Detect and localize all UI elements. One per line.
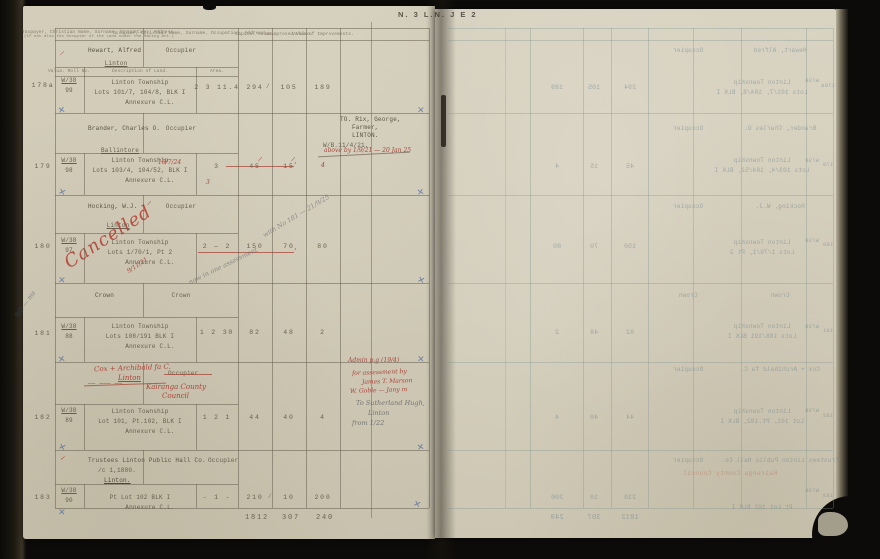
- bleed-through-text: 4: [555, 414, 559, 421]
- table-line: [55, 153, 238, 154]
- table-line: [143, 283, 144, 317]
- area-value: 3: [214, 163, 220, 170]
- bleed-through-text: Hewart, Alfred: [753, 47, 806, 54]
- bleed-through-text: Lots 108/191 BLK I: [728, 333, 796, 340]
- improvements-value: 4: [320, 414, 326, 421]
- capital-value: 44: [249, 414, 260, 421]
- red-margin-line: [371, 22, 372, 518]
- bleed-through-text: 1812: [621, 514, 639, 522]
- blue-ink-check: ✕: [57, 105, 66, 116]
- entry-number: 180: [34, 243, 51, 250]
- capital-value: 210: [246, 494, 263, 501]
- red-annotation: above by 1/9/21 — 20 Jan 25: [324, 147, 411, 154]
- bleed-through-text: Lot 101, Pt.102, BLK I: [720, 418, 804, 425]
- red-tick-mark: ✓: [60, 455, 65, 462]
- blue-ink-check: ✕: [57, 354, 66, 365]
- bleed-through-text: W/38: [805, 407, 819, 414]
- corner-flap: [818, 512, 848, 536]
- capital-value: 294: [246, 84, 263, 91]
- entry-number: 181: [34, 330, 51, 337]
- bleed-through-text: 70: [590, 243, 598, 250]
- bleed-through-text: Occupier: [673, 203, 703, 210]
- bleed-through-text: Lots 1/70/1, Pt 2: [730, 249, 795, 256]
- bleed-through-text: Pt Lot 102 BLK I: [732, 504, 793, 511]
- capital-value: 45: [249, 163, 260, 170]
- table-line: [143, 28, 144, 67]
- bleed-through-text: 179: [823, 161, 834, 168]
- bleed-through-text: Crown: [770, 292, 789, 299]
- binding-stitch-mark: [441, 95, 446, 147]
- bleed-through-text: Linton Township: [733, 79, 790, 86]
- table-line: [196, 317, 197, 362]
- bleed-through-text: 150: [624, 243, 636, 250]
- bleed-through-text: 40: [590, 414, 598, 421]
- bleed-through-text: 2: [555, 329, 559, 336]
- table-line-right: [693, 28, 694, 508]
- improvements-value-red: 4: [321, 161, 325, 169]
- bleed-through-text: 182: [823, 412, 834, 419]
- bleed-through-text: Linton Township: [733, 408, 790, 415]
- bleed-through-text: Lots 103/4, 104/52, BLK I: [714, 167, 809, 174]
- total-improvements: 240: [316, 514, 334, 522]
- description-line: Linton Township: [111, 323, 168, 330]
- improvements-value: 200: [314, 494, 331, 501]
- bleed-through-text: 200: [551, 494, 563, 501]
- bleed-through-text: 210: [624, 494, 636, 501]
- bleed-through-text: Hocking, W.J.: [755, 203, 804, 210]
- pencil-note: from 1/22: [352, 419, 384, 427]
- roll-ref-bottom: 90: [65, 497, 73, 504]
- bleed-through-text: W/38: [805, 77, 819, 84]
- roll-ref-bottom: 98: [65, 167, 73, 174]
- table-line: [55, 283, 429, 284]
- table-line: [55, 317, 238, 318]
- description-line: Lots 1/70/1, Pt 2: [108, 249, 173, 256]
- bleed-through-text: W/38: [805, 323, 819, 330]
- taxpayer-name: Trustees Linton Public Hall Co.: [88, 457, 206, 464]
- area-value: 1 2 30: [200, 329, 234, 336]
- bleed-through-text: 105: [588, 84, 600, 91]
- bleed-through-text: 181: [823, 327, 834, 334]
- table-line: [55, 67, 238, 68]
- description-line: Lots 101/7, 104/8, BLK I: [94, 89, 185, 96]
- bleed-through-text: 15: [590, 163, 598, 170]
- occupier-value: Occupier: [208, 457, 238, 464]
- bleed-through-text: Linton Township: [733, 323, 790, 330]
- blue-ink-check: ✕: [416, 442, 425, 453]
- description-line: Annexure C.L.: [125, 259, 174, 266]
- table-line-right: [648, 28, 649, 508]
- unimproved-value: 15: [283, 163, 294, 170]
- table-line: [143, 195, 144, 233]
- unimproved-value: 10: [283, 494, 294, 501]
- bleed-through-text: Occupier: [673, 125, 703, 132]
- description-line: Lots 103/4, 104/52, BLK I: [92, 167, 187, 174]
- value-slash: /: [266, 83, 270, 90]
- table-line: [272, 28, 273, 508]
- binding-gutter: [426, 0, 456, 559]
- table-line: [55, 484, 238, 485]
- unimproved-value: 40: [283, 414, 294, 421]
- occupier-value: Occupier: [166, 125, 196, 132]
- transfer-note-line: LINTON.: [352, 132, 379, 139]
- taxpayer-name: Brander, Charles O.: [88, 125, 160, 132]
- area-value: 1 2 1: [203, 414, 232, 421]
- area-value: 2 3 11.4: [194, 84, 240, 91]
- bleed-through-text: 82: [626, 329, 634, 336]
- top-edge-nub: [203, 3, 216, 10]
- occupier-value: Crown: [171, 292, 190, 299]
- entry-number: 183: [34, 494, 51, 501]
- table-line: [84, 233, 85, 283]
- table-line-right: [611, 28, 612, 508]
- description-line: Linton Township: [111, 239, 168, 246]
- bleed-through-text: Linton Township: [733, 157, 790, 164]
- blue-ink-check: ✕: [417, 106, 425, 117]
- table-line: [84, 153, 85, 195]
- table-line: [306, 28, 307, 508]
- area-value: - 1 -: [203, 494, 232, 501]
- bleed-through-text: Trustees Linton Public Hall Co.: [721, 457, 839, 464]
- improvements-value: 80: [317, 243, 328, 250]
- red-strike-line: [164, 374, 212, 375]
- table-line-right: [806, 28, 807, 508]
- taxpayer-name: Hewart, Alfred: [88, 47, 141, 54]
- table-line: [55, 195, 429, 196]
- table-line: [55, 28, 429, 29]
- blue-ink-check: ✕: [417, 355, 425, 366]
- occupier-value: Occupier: [166, 203, 196, 210]
- bleed-through-text: 240: [550, 514, 563, 522]
- total-unimproved: 307: [282, 514, 300, 522]
- page-mark-stamp: N. 3 L.N. J E 2: [398, 10, 478, 19]
- red-figure: 3: [206, 179, 210, 186]
- red-occupier-line: Kairanga County: [146, 383, 206, 391]
- description-line: Linton Township: [111, 79, 168, 86]
- table-line: [84, 67, 85, 113]
- bleed-through-text: W/38: [805, 237, 819, 244]
- bleed-through-text: W/38: [805, 487, 819, 494]
- entry-number: 182: [34, 414, 51, 421]
- taxpayer-address: Linton: [105, 60, 128, 67]
- bleed-through-text: Kairanga County Council: [683, 470, 777, 477]
- blue-ink-check: ✕: [58, 276, 66, 287]
- unimproved-value: 105: [280, 84, 297, 91]
- table-line: [196, 233, 197, 283]
- area-value: 2 — 2: [203, 243, 232, 250]
- red-margin-line-right: [505, 28, 506, 508]
- table-line: [55, 28, 56, 508]
- table-line: [143, 362, 144, 404]
- table-line: [55, 40, 429, 41]
- bleed-through-text: 10: [590, 494, 598, 501]
- bleed-through-text: Linton Township: [733, 239, 790, 246]
- table-line: [55, 233, 238, 234]
- bleed-through-text: 189: [551, 84, 563, 91]
- description-line: Annexure C.L.: [125, 428, 174, 435]
- table-line: [429, 28, 430, 508]
- roll-ref-top: W/38: [61, 77, 76, 84]
- roll-ref-bottom: 99: [65, 87, 73, 94]
- pencil-note: To Sutherland Hugh,: [356, 399, 425, 407]
- taxpayer-address: Linton.: [104, 477, 131, 484]
- roll-ref-top: W/38: [61, 487, 76, 494]
- table-line: [55, 450, 429, 451]
- table-line: [84, 404, 85, 450]
- table-line-right: [833, 28, 834, 508]
- bleed-through-text: Brander, Charles O.: [744, 125, 816, 132]
- table-line-right: [530, 28, 531, 508]
- bleed-through-text: 45: [626, 163, 634, 170]
- bleed-through-text: 294: [624, 84, 636, 91]
- bleed-through-text: Lots 101/7, 104/8, BLK I: [716, 89, 807, 96]
- total-capital: 1812: [245, 514, 269, 522]
- bleed-through-text: 48: [590, 329, 598, 336]
- table-line: [55, 113, 429, 114]
- table-line: [55, 362, 429, 363]
- roll-ref-bottom: 89: [65, 417, 73, 424]
- entry-number: 179: [34, 163, 51, 170]
- table-line: [84, 317, 85, 362]
- header-area: Area.: [210, 69, 224, 74]
- description-line: Lots 108/191 BLK I: [106, 333, 174, 340]
- unimproved-value: 48: [283, 329, 294, 336]
- table-line: [143, 450, 144, 484]
- taxpayer-name-line2: /c 1,1880.: [98, 467, 136, 474]
- bleed-through-text: Occupier: [673, 366, 703, 373]
- roll-ref-top: W/38: [61, 237, 76, 244]
- bleed-through-text: Crown: [678, 292, 697, 299]
- blue-ink-check: ✕: [416, 187, 425, 198]
- bleed-through-text: 80: [553, 243, 561, 250]
- blue-ink-check: ✕: [58, 508, 66, 519]
- description-line: Annexure C.L.: [125, 99, 174, 106]
- bleed-through-text: 180: [823, 241, 834, 248]
- transfer-note-line: Farmer,: [352, 124, 379, 131]
- bleed-through-text: 307: [587, 514, 600, 522]
- table-line: [196, 153, 197, 195]
- table-line: [84, 484, 85, 508]
- roll-ref-top: W/38: [61, 323, 76, 330]
- roll-ref-bottom: 88: [65, 333, 73, 340]
- header-value-improvements: Value of Improvements.: [292, 32, 354, 37]
- table-line: [340, 28, 341, 508]
- header-description: Description of Land.: [112, 69, 168, 74]
- bleed-through-text: 44: [626, 414, 634, 421]
- table-line: [238, 28, 239, 508]
- roll-ref-top: W/38: [61, 157, 76, 164]
- table-line: [55, 508, 429, 509]
- bleed-through-text: Cox + Archibald fa C.: [740, 366, 820, 373]
- bleed-through-text: Occupier: [673, 457, 703, 464]
- red-date-edit: 10/7/24: [158, 159, 181, 166]
- table-line: [55, 76, 238, 77]
- table-line: [196, 404, 197, 450]
- ledger-book-scan: N. 3 L.N. J E 2 Taxpayer, Christian Name…: [0, 0, 880, 559]
- bleed-through-text: 183: [823, 492, 834, 499]
- description-line: Lot 101, Pt.102, BLK I: [98, 418, 182, 425]
- table-line-right: [741, 28, 742, 508]
- bleed-through-text: 4: [555, 163, 559, 170]
- description-line: Linton Township: [111, 408, 168, 415]
- occupier-value: Occupier: [166, 47, 196, 54]
- improvements-value: 189: [314, 84, 331, 91]
- table-line: [143, 113, 144, 153]
- table-line: [55, 404, 238, 405]
- red-occupier-line: Council: [162, 392, 189, 400]
- entry-number: 178a: [32, 82, 55, 89]
- bleed-through-text: 178a: [821, 82, 835, 89]
- bleed-through-text: W/38: [805, 157, 819, 164]
- roll-ref-top: W/38: [61, 407, 76, 414]
- description-line: Annexure C.L.: [125, 343, 174, 350]
- description-line: Annexure C.L.: [125, 177, 174, 184]
- improvements-value: 2: [320, 329, 326, 336]
- unimproved-value: 70: [283, 243, 294, 250]
- table-line: [196, 67, 197, 113]
- table-line: [196, 484, 197, 508]
- bleed-through-text: Occupier: [673, 47, 703, 54]
- taxpayer-name: Crown: [95, 292, 114, 299]
- table-line-right: [583, 28, 584, 508]
- capital-value: 82: [249, 329, 260, 336]
- description-line: Pt Lot 102 BLK I: [110, 494, 171, 501]
